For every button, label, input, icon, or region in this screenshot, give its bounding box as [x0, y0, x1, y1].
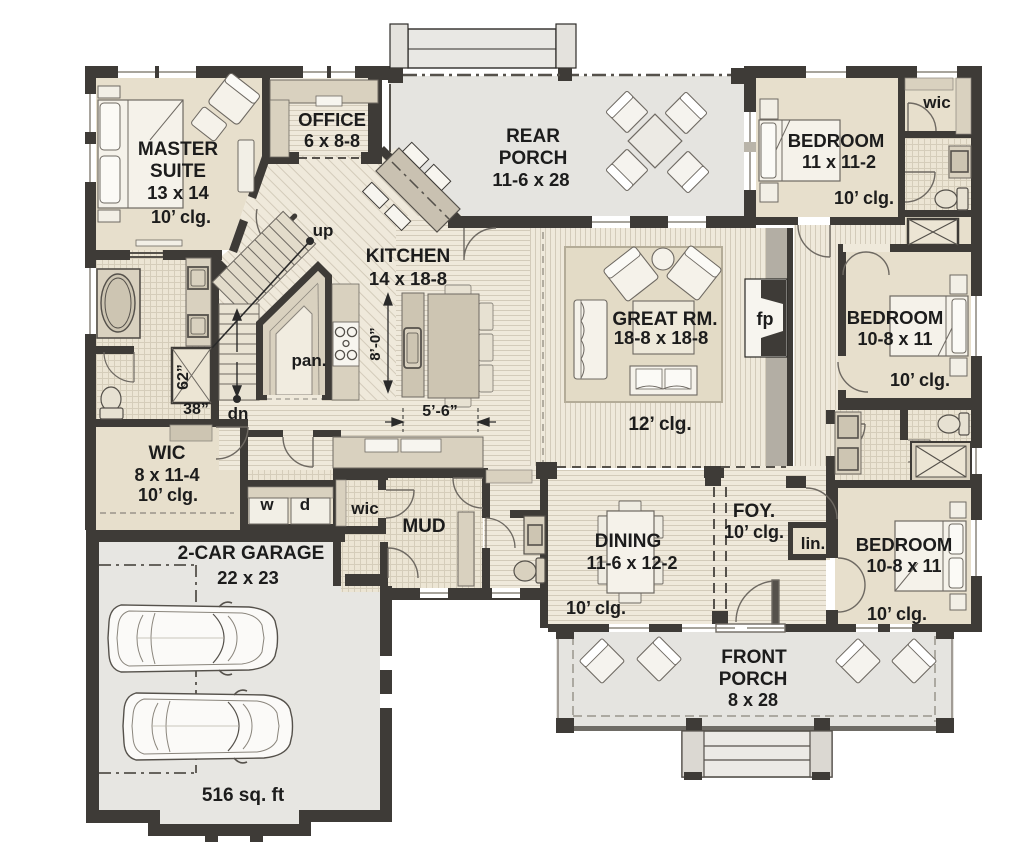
svg-text:10’ clg.: 10’ clg.	[138, 485, 198, 505]
svg-text:wic: wic	[350, 499, 378, 518]
svg-text:BEDROOM: BEDROOM	[856, 534, 953, 555]
svg-text:lin.: lin.	[801, 534, 826, 553]
svg-text:8 x 28: 8 x 28	[728, 690, 778, 710]
svg-text:FOY.: FOY.	[733, 501, 775, 522]
svg-text:PORCH: PORCH	[719, 669, 788, 690]
svg-text:13 x 14: 13 x 14	[147, 182, 209, 203]
svg-text:10’ clg.: 10’ clg.	[890, 370, 950, 390]
svg-text:10’ clg.: 10’ clg.	[151, 207, 211, 227]
svg-text:10-8 x 11: 10-8 x 11	[857, 329, 932, 349]
svg-text:11-6 x 28: 11-6 x 28	[492, 169, 569, 190]
svg-text:11-6 x 12-2: 11-6 x 12-2	[586, 553, 677, 573]
svg-text:22 x 23: 22 x 23	[217, 567, 279, 588]
svg-text:dn: dn	[228, 404, 249, 423]
svg-text:18-8 x 18-8: 18-8 x 18-8	[614, 327, 709, 348]
svg-text:BEDROOM: BEDROOM	[847, 307, 944, 328]
svg-text:8 x 11-4: 8 x 11-4	[134, 465, 199, 485]
svg-text:10’ clg.: 10’ clg.	[566, 598, 626, 618]
svg-text:MASTER: MASTER	[138, 139, 219, 160]
svg-text:10’ clg.: 10’ clg.	[724, 522, 784, 542]
svg-text:d: d	[300, 495, 310, 514]
svg-text:wic: wic	[922, 93, 950, 112]
svg-text:10’ clg.: 10’ clg.	[834, 188, 894, 208]
svg-text:11 x 11-2: 11 x 11-2	[802, 152, 876, 172]
svg-text:14 x 18-8: 14 x 18-8	[369, 268, 447, 289]
svg-text:SUITE: SUITE	[150, 161, 206, 182]
svg-text:BEDROOM: BEDROOM	[788, 130, 885, 151]
svg-text:12’ clg.: 12’ clg.	[628, 414, 691, 435]
svg-text:2-CAR GARAGE: 2-CAR GARAGE	[178, 543, 325, 564]
svg-text:KITCHEN: KITCHEN	[366, 246, 450, 267]
svg-text:up: up	[313, 221, 334, 240]
svg-text:MUD: MUD	[402, 516, 445, 537]
svg-text:fp: fp	[757, 309, 774, 329]
svg-text:WIC: WIC	[149, 443, 186, 464]
svg-text:DINING: DINING	[595, 531, 662, 552]
svg-text:pan.: pan.	[292, 351, 327, 370]
svg-text:w: w	[259, 495, 274, 514]
svg-text:5’-6”: 5’-6”	[422, 403, 458, 420]
svg-text:REAR: REAR	[506, 126, 560, 147]
svg-text:38”: 38”	[183, 401, 209, 418]
svg-text:8’-0”: 8’-0”	[367, 327, 384, 360]
svg-text:6 x 8-8: 6 x 8-8	[304, 131, 360, 151]
svg-text:OFFICE: OFFICE	[298, 109, 366, 130]
svg-text:PORCH: PORCH	[499, 148, 568, 169]
svg-text:10’ clg.: 10’ clg.	[867, 604, 927, 624]
svg-text:10-8 x 11: 10-8 x 11	[866, 556, 941, 576]
svg-text:62”: 62”	[175, 364, 192, 390]
svg-text:FRONT: FRONT	[721, 647, 787, 668]
svg-text:516 sq. ft: 516 sq. ft	[202, 785, 285, 806]
